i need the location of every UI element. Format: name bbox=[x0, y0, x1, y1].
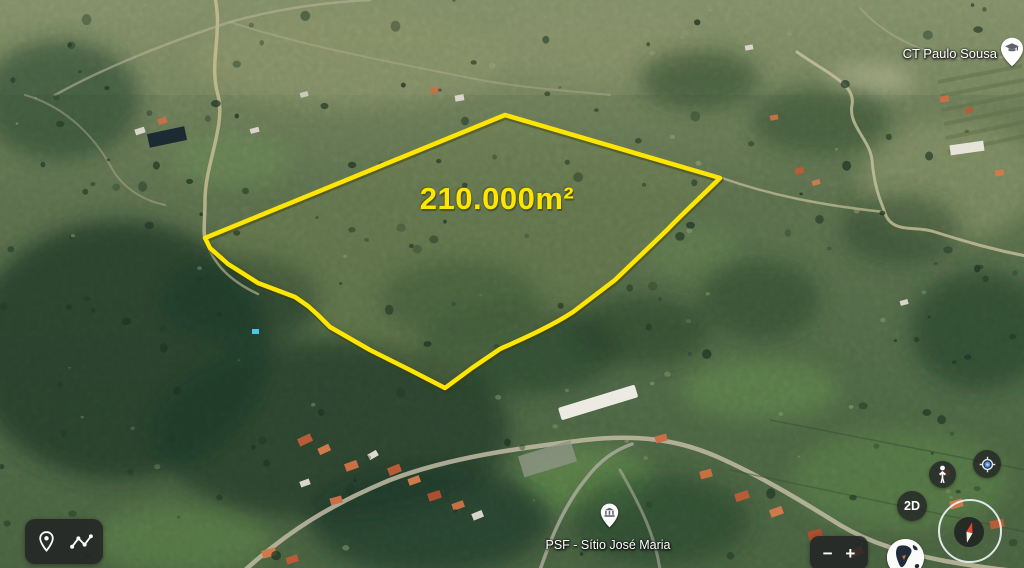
poi-label-school[interactable]: CT Paulo Sousa bbox=[903, 46, 997, 61]
my-location-icon bbox=[979, 456, 996, 473]
globe-button[interactable] bbox=[887, 539, 924, 568]
compass-icon bbox=[961, 520, 977, 543]
map-tools-toolbar bbox=[25, 519, 103, 564]
place-marker-icon[interactable] bbox=[34, 529, 60, 555]
view-mode-2d-button[interactable]: 2D bbox=[897, 491, 927, 521]
pegman-icon bbox=[936, 465, 949, 484]
satellite-imagery bbox=[0, 0, 1024, 568]
globe-icon bbox=[887, 539, 924, 568]
poi-label-health-post[interactable]: PSF - Sítio José Maria bbox=[545, 538, 670, 552]
zoom-in-button[interactable]: + bbox=[845, 545, 855, 562]
school-pin-icon[interactable] bbox=[1000, 37, 1024, 67]
zoom-control: − + bbox=[810, 536, 868, 568]
parcel-area-label: 210.000m² bbox=[420, 181, 574, 217]
map-viewport[interactable]: 210.000m² CT Paulo Sousa PSF - Sítio Jos… bbox=[0, 0, 1024, 568]
pegman-button[interactable] bbox=[929, 461, 956, 488]
zoom-out-button[interactable]: − bbox=[823, 545, 833, 562]
compass[interactable] bbox=[938, 499, 1002, 563]
my-location-button[interactable] bbox=[973, 450, 1001, 478]
measure-path-icon[interactable] bbox=[68, 529, 94, 555]
civic-building-pin-icon[interactable] bbox=[600, 503, 619, 528]
